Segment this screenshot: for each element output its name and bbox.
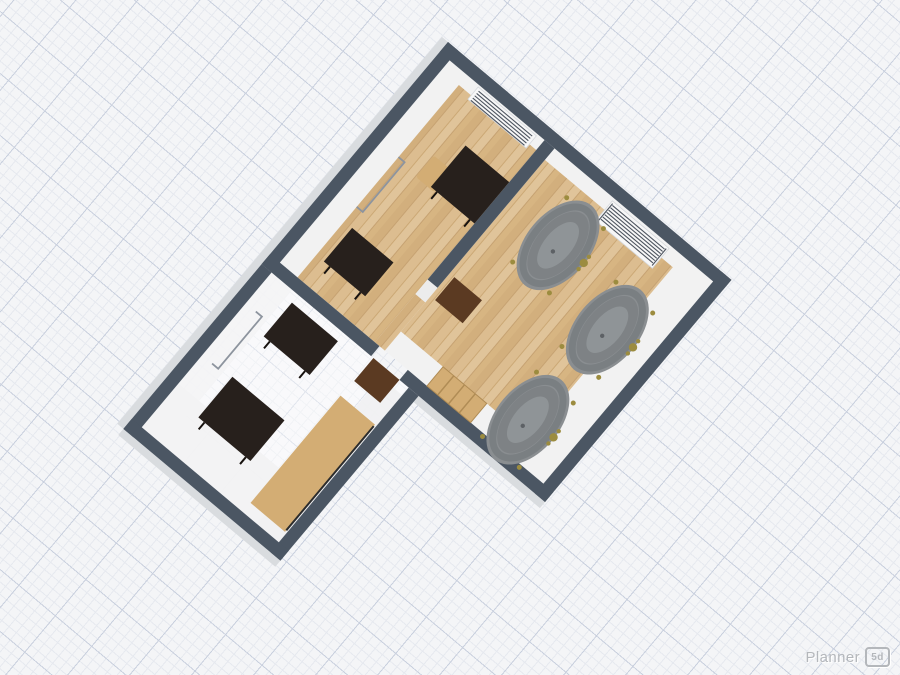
planner5d-logo-badge: 5d: [865, 647, 890, 667]
floorplan-3d-view[interactable]: Planner 5d: [0, 0, 900, 675]
watermark-brand-text: Planner: [805, 649, 860, 666]
planner5d-watermark: Planner 5d: [805, 647, 890, 667]
